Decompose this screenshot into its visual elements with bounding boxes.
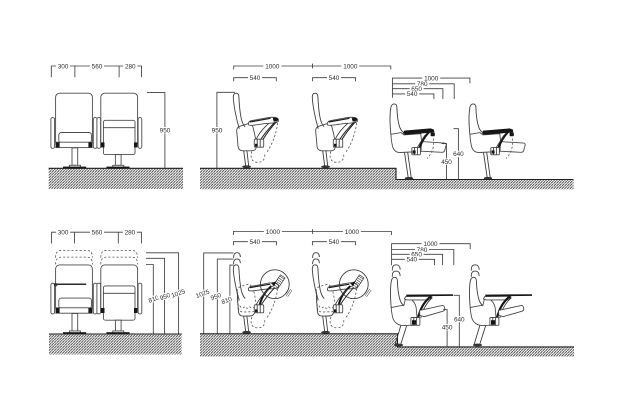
svg-text:1000: 1000	[266, 229, 281, 236]
svg-text:540: 540	[329, 75, 340, 82]
svg-text:560: 560	[92, 230, 103, 237]
svg-text:280: 280	[125, 63, 136, 70]
svg-text:640: 640	[454, 316, 465, 323]
svg-text:1000: 1000	[343, 63, 358, 70]
svg-text:280: 280	[125, 230, 136, 237]
svg-text:1000: 1000	[265, 63, 280, 70]
svg-text:450: 450	[442, 325, 453, 332]
svg-text:540: 540	[329, 239, 340, 246]
svg-text:950: 950	[160, 128, 171, 135]
svg-text:540: 540	[250, 239, 261, 246]
svg-text:560: 560	[92, 63, 103, 70]
svg-text:300: 300	[58, 230, 69, 237]
svg-text:540: 540	[250, 75, 261, 82]
svg-text:1000: 1000	[345, 229, 360, 236]
svg-text:540: 540	[406, 257, 417, 264]
svg-text:950: 950	[212, 128, 223, 135]
svg-text:540: 540	[407, 91, 418, 98]
svg-text:640: 640	[453, 151, 464, 158]
svg-text:300: 300	[58, 63, 69, 70]
svg-text:450: 450	[441, 159, 452, 166]
